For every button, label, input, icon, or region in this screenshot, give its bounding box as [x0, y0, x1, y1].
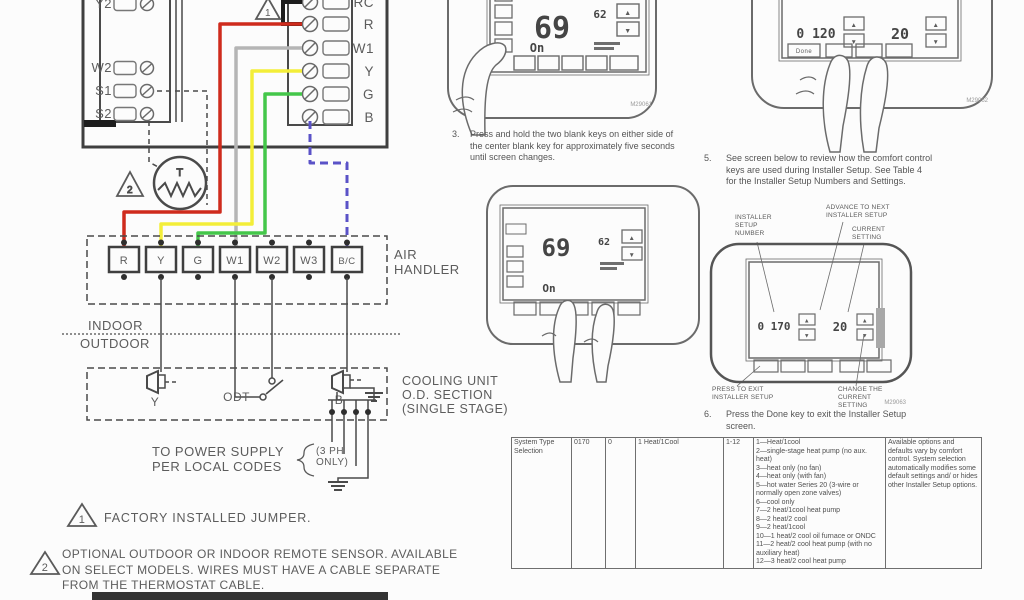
- terminal-label: B: [364, 110, 374, 125]
- display-tag: [506, 224, 526, 234]
- ah-terminals: R Y G W1 W2 W3 B/C: [109, 247, 362, 272]
- cooling-unit-label: COOLING UNIT O.D. SECTION (SINGLE STAGE): [402, 374, 508, 416]
- callout-change-setting: CHANGE THE CURRENT SETTING: [838, 386, 883, 410]
- thermostat2-illustration: 69 62 ▲ ▼ On: [487, 186, 699, 382]
- note1-text: FACTORY INSTALLED JUMPER.: [104, 511, 311, 525]
- cell-default: 1 Heat/1Cool: [636, 438, 724, 569]
- done-key-label: Done: [796, 49, 813, 55]
- terminal-label: G: [363, 87, 374, 102]
- setpoint-readout: 62: [593, 8, 606, 21]
- ah-terminal-label: B/C: [338, 256, 355, 267]
- screw-slot: [305, 66, 315, 76]
- jumper-marker: 1: [265, 8, 271, 19]
- air-handler-strip: R Y G W1 W2 W3 B/C: [87, 236, 387, 304]
- small-label-smudge: [594, 47, 614, 50]
- sensor-marker: 2: [127, 185, 133, 196]
- cell-setting-name: System Type Selection: [512, 438, 572, 569]
- screw-slot: [305, 19, 315, 29]
- terminal-slot: [323, 41, 349, 55]
- terminal-slot: [114, 0, 136, 11]
- terminal-slot: [323, 64, 349, 78]
- knuckle-lines: [796, 77, 816, 94]
- settings-table: System Type Selection 0170 0 1 Heat/1Coo…: [511, 437, 982, 569]
- pressing-finger: [823, 55, 850, 152]
- setpoint-readout: 62: [598, 237, 610, 248]
- ground-symbol: [328, 482, 348, 490]
- arrow-down-icon: ▼: [624, 28, 631, 35]
- lead-w1: [235, 278, 260, 397]
- ah-terminal-label: Y: [157, 255, 165, 267]
- factory-jumper-wire: [283, 0, 302, 24]
- terminal-slot: [323, 87, 349, 101]
- callout-current-setting: CURRENT SETTING: [852, 226, 885, 242]
- air-handler-label: AIR HANDLER: [394, 247, 460, 277]
- three-phase-note: (3 PH ONLY): [316, 446, 348, 468]
- ah-terminal-label: W2: [263, 255, 281, 267]
- bottom-key-row: [514, 302, 640, 315]
- brace-icon: [297, 444, 314, 476]
- callout-advance: ADVANCE TO NEXT INSTALLER SETUP: [826, 204, 890, 220]
- pressing-finger: [554, 300, 577, 382]
- thermostat1-illustration: 69 62 ▲ ▼ On M29061: [448, 0, 656, 135]
- screw-slot: [142, 110, 152, 119]
- terminal-label: S2: [95, 106, 112, 121]
- right-terminals: RC R W1 Y: [303, 0, 375, 125]
- isu-number-readout: 0 170: [757, 320, 790, 333]
- callout-exit: PRESS TO EXIT INSTALLER SETUP: [712, 386, 773, 402]
- terminal-label: Y2: [95, 0, 112, 11]
- terminal-row-y: Y: [303, 64, 375, 80]
- note2-text: OPTIONAL OUTDOOR OR INDOOR REMOTE SENSOR…: [62, 547, 458, 594]
- terminal-slot: [114, 108, 136, 121]
- power-junction-dots: [329, 409, 371, 415]
- sensor-body: [154, 157, 206, 209]
- terminal-slot: [323, 17, 349, 31]
- terminal-slot: [114, 62, 136, 75]
- wire-red-r: [124, 24, 302, 246]
- sensor-lead: [149, 121, 160, 168]
- terminal-label: W2: [92, 60, 113, 75]
- screw-slot: [305, 0, 315, 7]
- right-block-outline: [288, 0, 352, 125]
- wires: [124, 24, 347, 246]
- isu-number-readout: 0 120: [796, 27, 835, 42]
- bottom-key-row: [754, 360, 891, 372]
- switch-contact: [260, 394, 266, 400]
- step3-text: Press and hold the two blank keys on eit…: [470, 129, 710, 164]
- small-label-smudge: [600, 262, 624, 265]
- outdoor-label: OUTDOOR: [80, 336, 150, 351]
- pressing-finger: [860, 57, 887, 152]
- cell-options: 1—Heat/1cool 2—single-stage heat pump (n…: [754, 438, 886, 569]
- figure-code: M29062: [966, 98, 988, 104]
- arrow-up-icon: ▲: [629, 235, 636, 242]
- cell-notes: Available options and defaults vary by c…: [886, 438, 982, 569]
- screw-slot: [305, 112, 315, 122]
- arrow-down-icon: ▼: [933, 39, 940, 46]
- ah-terminal-label: R: [120, 255, 128, 267]
- ah-terminal-label: G: [193, 255, 202, 267]
- arrow-up-icon: ▲: [804, 319, 810, 325]
- note2-marker: 2: [42, 562, 49, 574]
- arrow-down-icon: ▼: [629, 252, 636, 259]
- figure-code: M29061: [630, 102, 652, 108]
- setting-readout: 20: [833, 320, 847, 334]
- cell-setup-number: 0170: [572, 438, 606, 569]
- terminal-row-b: B: [303, 110, 375, 126]
- left-key-column: [507, 246, 523, 287]
- step6-number: 6.: [704, 409, 712, 419]
- connector-icon: [147, 371, 158, 393]
- screw-slot: [142, 64, 152, 73]
- right-terminal-block: RC R W1 Y: [256, 0, 374, 125]
- pressing-finger: [592, 304, 614, 382]
- arrow-down-icon: ▼: [862, 334, 868, 340]
- block-foot: [84, 120, 116, 127]
- terminal-slot: [323, 0, 349, 9]
- b-connector: B: [332, 371, 362, 407]
- pointing-finger: [462, 43, 506, 135]
- temperature-readout: 69: [542, 234, 571, 262]
- step6-text: Press the Done key to exit the Installer…: [726, 409, 976, 432]
- connector-icon: [343, 375, 350, 388]
- shaded-tab: [876, 308, 885, 348]
- thermostat-body: [487, 186, 699, 344]
- callout-installer-setup-number: INSTALLER SETUP NUMBER: [735, 214, 772, 238]
- screw-slot: [142, 0, 152, 9]
- thermostat3-illustration: 0 120 ▲ ▼ 20 ▲ ▼ Done M29062: [752, 0, 992, 152]
- odt-switch: ODT: [223, 378, 283, 404]
- terminal-slot: [114, 85, 136, 98]
- thermostat4-illustration: 0 170 ▲ ▼ 20 ▲ ▼ M29063: [711, 222, 911, 406]
- mode-readout: On: [530, 41, 544, 55]
- mode-readout: On: [542, 282, 555, 295]
- step5-text: See screen below to review how the comfo…: [726, 153, 976, 188]
- display-frame: [746, 259, 882, 361]
- terminal-label: Y: [364, 64, 374, 79]
- terminal-row-g: G: [303, 87, 375, 103]
- small-label-smudge: [594, 42, 620, 45]
- cooling-leads: [161, 278, 347, 397]
- y-connector: Y: [147, 371, 178, 409]
- display-frame: [500, 205, 648, 303]
- outdoor-sensor: T 2: [117, 91, 207, 209]
- manual-page: Y2 W2 S1 S2 RC: [0, 0, 1024, 600]
- terminal-label: R: [364, 17, 374, 32]
- switch-contact: [269, 378, 275, 384]
- arrow-down-icon: ▼: [804, 334, 810, 340]
- terminal-label: W1: [353, 41, 374, 56]
- cell-col3: 0: [606, 438, 636, 569]
- small-label-smudge: [600, 267, 617, 270]
- terminal-slot: [323, 110, 349, 124]
- setting-readout: 20: [891, 25, 909, 43]
- y-connector-label: Y: [151, 395, 160, 409]
- arrow-up-icon: ▲: [933, 22, 940, 29]
- arrow-up-icon: ▲: [851, 22, 858, 29]
- ground-symbol: [350, 388, 383, 401]
- connector-icon: [158, 375, 165, 388]
- indoor-label: INDOOR: [88, 318, 143, 333]
- terminal-row-r: R: [303, 17, 375, 33]
- arrow-up-icon: ▲: [862, 319, 868, 325]
- cell-range: 1-12: [724, 438, 754, 569]
- connector-icon: [332, 371, 343, 393]
- wire-blue-b-dashed: [310, 121, 347, 246]
- power-supply-label: TO POWER SUPPLY PER LOCAL CODES: [152, 444, 284, 474]
- table-row: System Type Selection 0170 0 1 Heat/1Coo…: [512, 438, 982, 569]
- ah-terminal-label: W3: [300, 255, 318, 267]
- terminal-row-rc: RC: [303, 0, 375, 10]
- odt-label: ODT: [223, 390, 250, 404]
- sensor-label: T: [176, 167, 183, 179]
- screw-slot: [142, 87, 152, 96]
- ah-terminal-label: W1: [226, 255, 244, 267]
- resistor-zigzag-icon: [158, 183, 201, 196]
- display-screen: [503, 208, 645, 300]
- screw-slot: [305, 43, 315, 53]
- terminal-label: S1: [95, 83, 112, 98]
- step3-number: 3.: [452, 129, 460, 139]
- bottom-key-row: [514, 56, 638, 70]
- note1-marker: 1: [79, 514, 86, 526]
- step5-number: 5.: [704, 153, 712, 163]
- terminal-label: RC: [354, 0, 375, 10]
- screw-slot: [305, 89, 315, 99]
- figure-code: M29063: [884, 400, 906, 406]
- display-screen: [749, 262, 879, 358]
- terminal-row-w1: W1: [303, 41, 375, 57]
- arrow-up-icon: ▲: [624, 10, 631, 17]
